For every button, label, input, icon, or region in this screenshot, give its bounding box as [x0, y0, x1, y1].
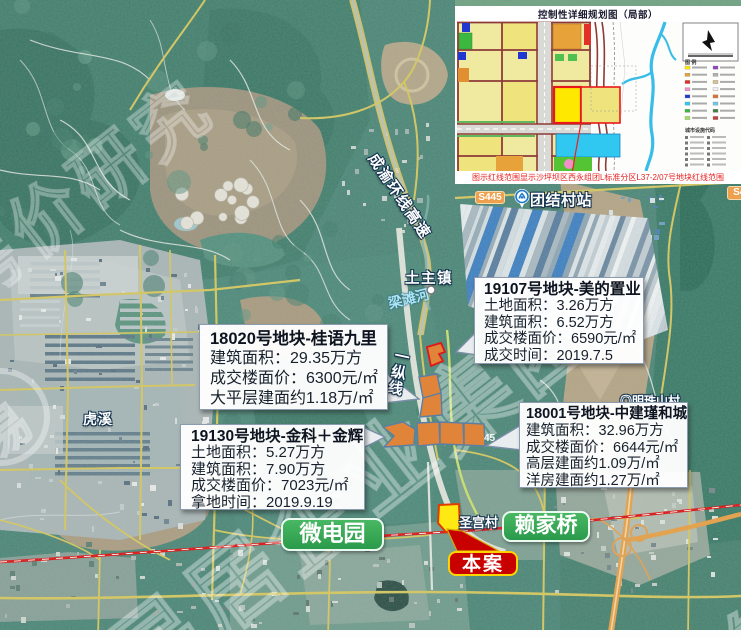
svg-text:城市设施代码: 城市设施代码 [685, 127, 715, 134]
svg-text:图 例: 图 例 [685, 59, 696, 66]
